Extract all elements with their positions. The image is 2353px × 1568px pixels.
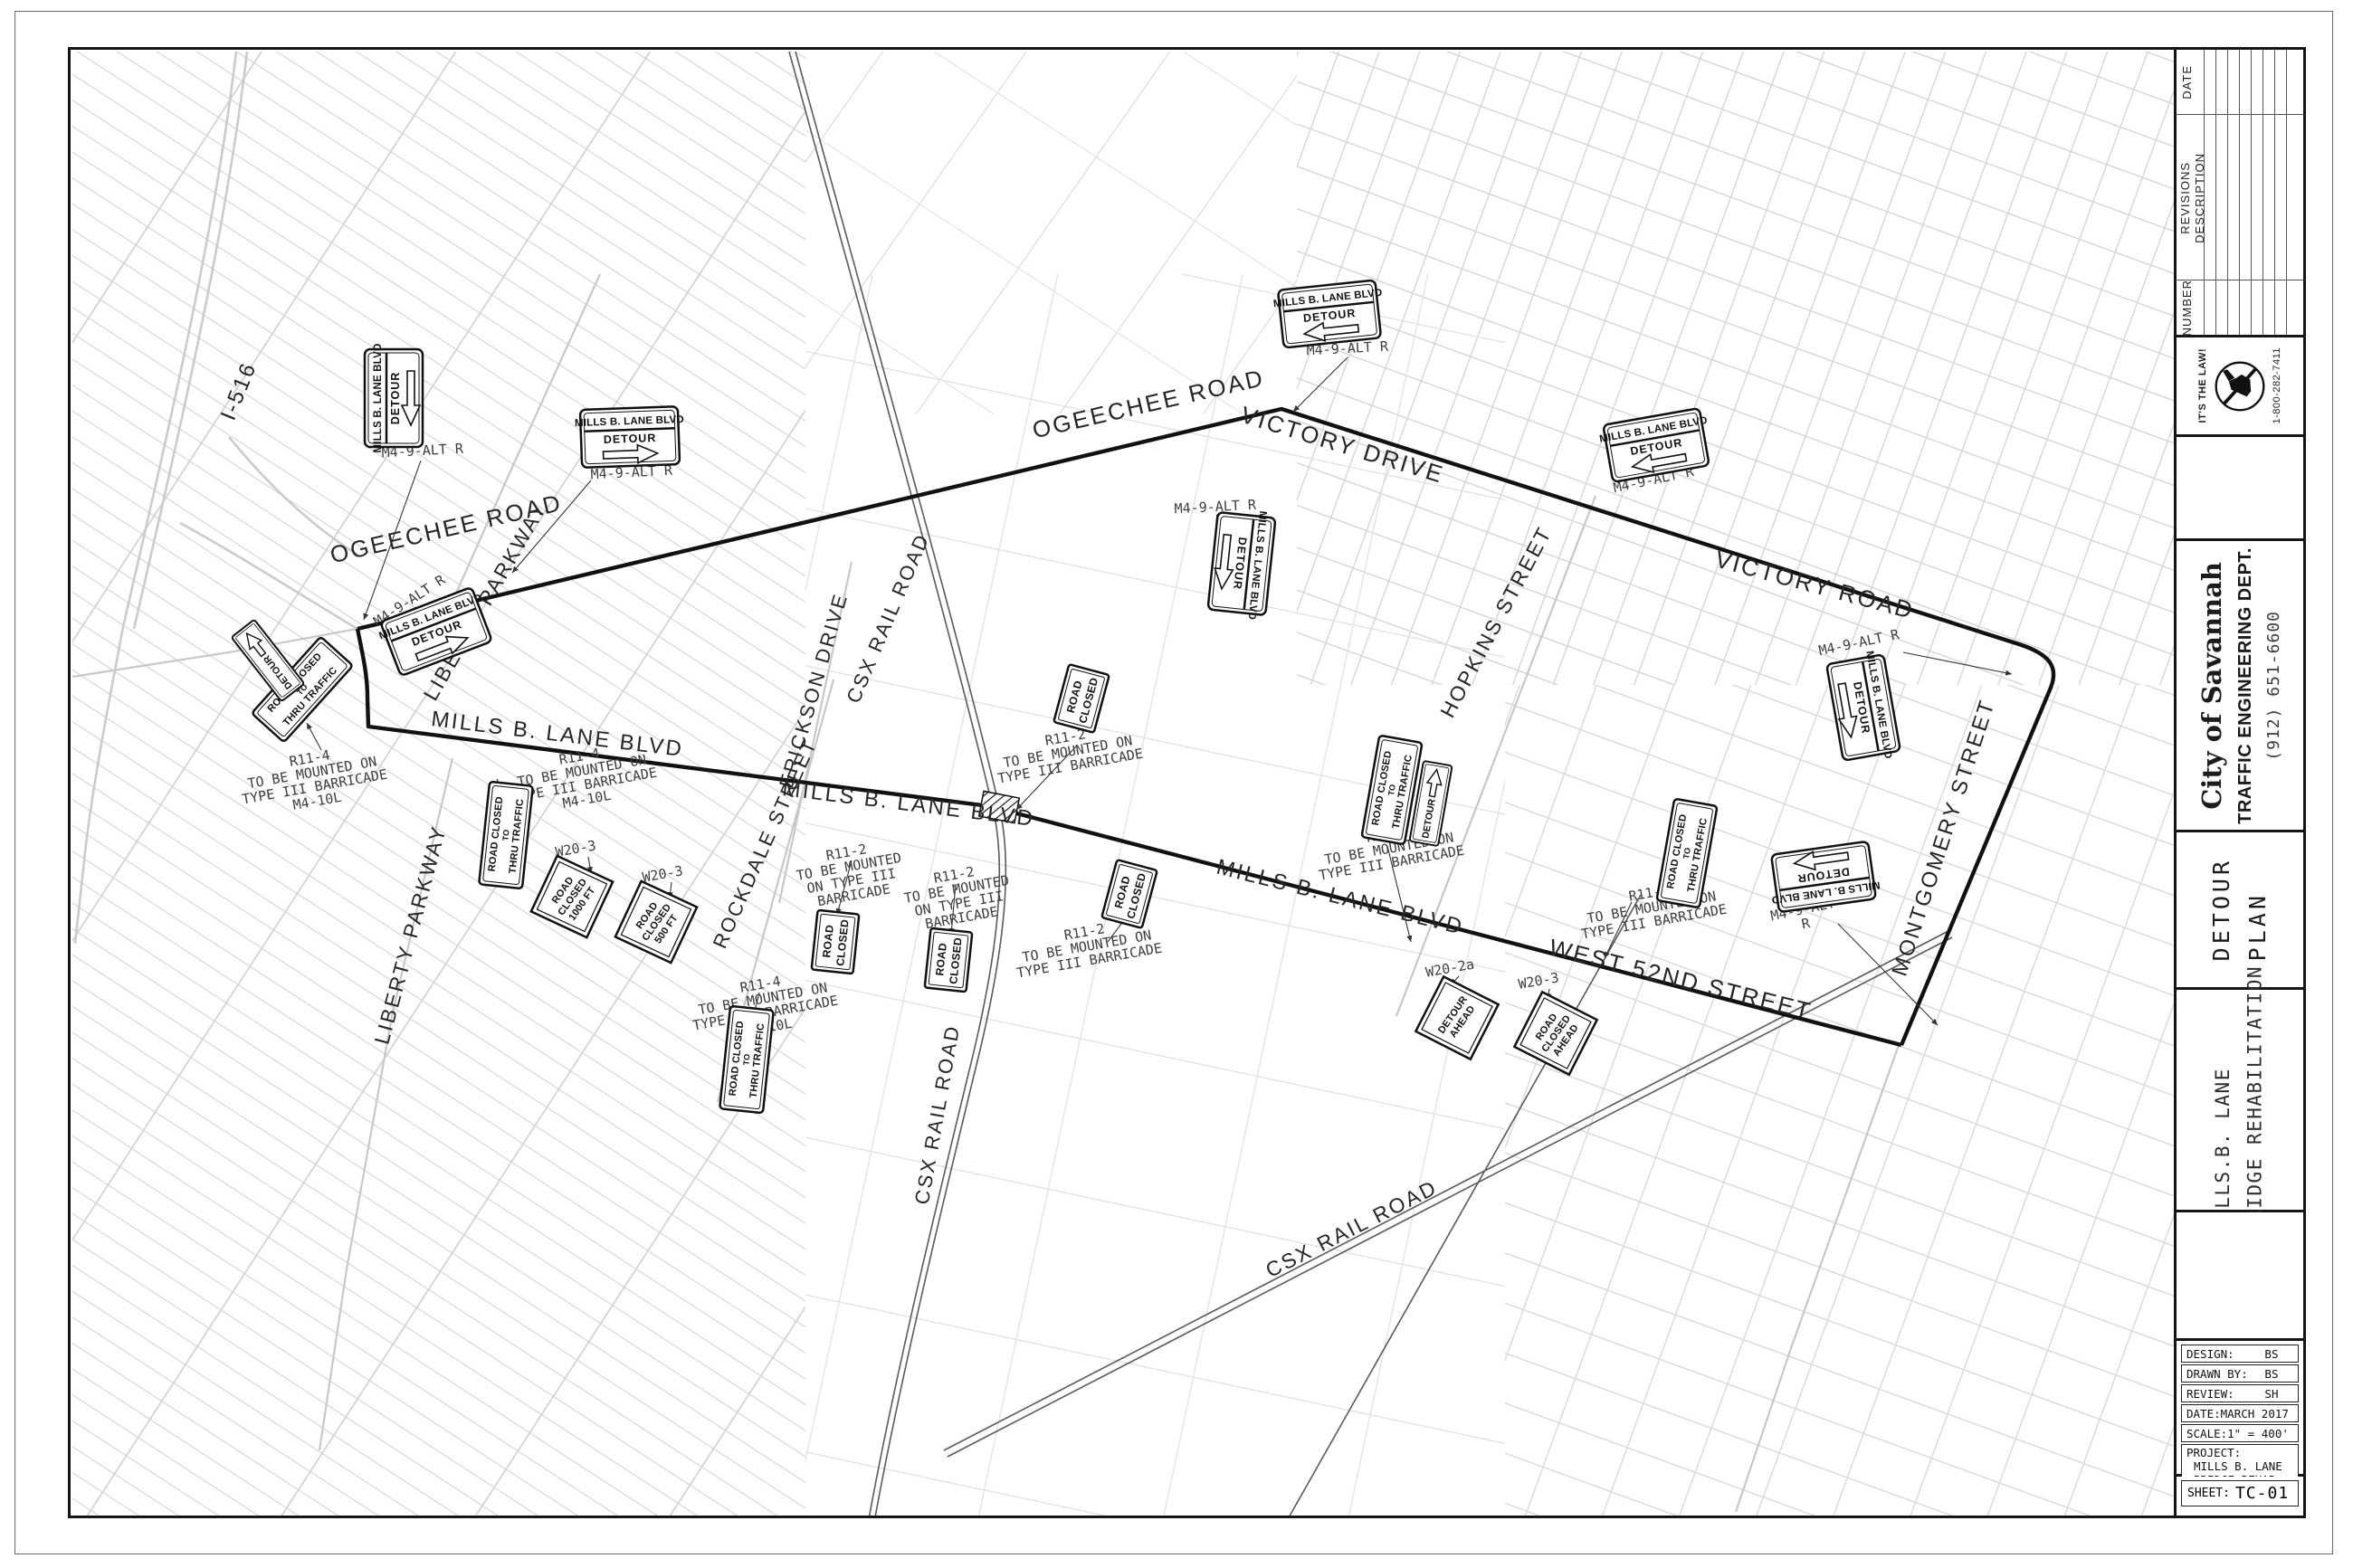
agency-dept: TRAFFIC ENGINEERING DEPT. [2235, 547, 2256, 824]
spec-note: R11-2TO BE MOUNTED ONTYPE III BARRICADE [992, 717, 1145, 786]
revisions-table: DATE REVISIONS DESCRIPTION NUMBER [2177, 50, 2303, 337]
sheet-number-box: SHEET: TC-01 [2181, 1480, 2299, 1506]
svg-text:TO: TO [500, 829, 510, 841]
road-label: HOPKINS STREET [1435, 522, 1557, 721]
background-streets [71, 50, 2179, 1516]
agency-panel: City of Savannah TRAFFIC ENGINEERING DEP… [2177, 541, 2303, 832]
road-label: CSX RAIL ROAD [842, 529, 934, 706]
sheet-number-panel: SHEET: TC-01 [2177, 1477, 2303, 1516]
svg-text:TO: TO [741, 1053, 751, 1066]
info-row: DESIGN:BS [2181, 1345, 2299, 1363]
info-row: DATE:MARCH 2017 [2181, 1404, 2299, 1422]
sheet-number: TC-01 [2235, 1484, 2289, 1503]
revisions-number-header: NUMBER [2180, 280, 2194, 336]
detour-plan-map: I-516OGEECHEE ROADOGEECHEE ROADVICTORY D… [71, 50, 2179, 1516]
road-label: ROCKDALE STREET [709, 735, 822, 952]
svg-text:DETOUR: DETOUR [389, 372, 402, 425]
m4-9-detour-sign: MILLS B. LANE BLVDDETOUR [574, 406, 685, 468]
no-dig-icon [2212, 356, 2268, 416]
road-closed-sign: ROADCLOSED [925, 928, 973, 992]
road-label: MONTGOMERY STREET [1888, 696, 2001, 979]
info-row: DRAWN BY:BS [2181, 1364, 2299, 1383]
project-title: MILLS.B. LANE BRIDGE REHABILITATION [2207, 965, 2272, 1234]
agency-name: City of Savannah [2196, 562, 2227, 810]
m4-9-detour-sign: MILLS B. LANE BLVDDETOUR [1597, 407, 1715, 483]
m4-9-detour-sign: MILLS B. LANE BLVDDETOUR [1272, 280, 1387, 348]
m4-9-detour-sign: MILLS B. LANE BLVDDETOUR [1825, 649, 1901, 766]
road-label: WEST 52ND STREET [1547, 934, 1815, 1025]
its-the-law-text: IT'S THE LAW! [2197, 348, 2208, 423]
road-closed-sign: ROADCLOSED [1101, 860, 1157, 928]
road-label: OGEECHEE ROAD [1030, 364, 1267, 443]
m4-9-detour-sign: MILLS B. LANE BLVDDETOUR [1766, 841, 1882, 913]
spec-note: W20-2a [1424, 956, 1475, 981]
svg-text:DETOUR: DETOUR [604, 432, 657, 446]
info-row: REVIEW:SH [2181, 1384, 2299, 1402]
call-before-dig-panel: IT'S THE LAW! 1-800-282-7411 [2177, 337, 2303, 437]
spec-note: R11-2TO BE MOUNTEDON TYPE IIIBARRICADE [900, 858, 1015, 935]
road-closed-thru-traffic-sign: ROAD CLOSEDTOTHRU TRAFFIC [719, 1006, 774, 1113]
m4-9-detour-sign: MILLS B. LANE BLVDDETOUR [1207, 507, 1276, 622]
spec-note: W20-3 [1517, 969, 1560, 993]
drawing-frame: I-516OGEECHEE ROADOGEECHEE ROADVICTORY D… [68, 47, 2306, 1518]
revisions-date-header: DATE [2180, 65, 2194, 100]
spec-note: R11-2TO BE MOUNTEDON TYPE IIIBARRICADE [793, 835, 908, 912]
revisions-grid-lines [2204, 50, 2291, 335]
dig-hotline-phone: 1-800-282-7411 [2272, 347, 2282, 423]
blank-panel [2177, 1212, 2303, 1341]
road-closed-sign: ROADCLOSED [1053, 664, 1110, 733]
sheet-label: SHEET: [2187, 1487, 2230, 1500]
title-block: DATE REVISIONS DESCRIPTION NUMBER IT'S T… [2174, 50, 2303, 1516]
road-label: VICTORY ROAD [1712, 546, 1918, 625]
road-label: VICTORY DRIVE [1238, 401, 1448, 489]
plan-sheet: I-516OGEECHEE ROADOGEECHEE ROADVICTORY D… [0, 0, 2353, 1568]
drawing-info-table: DESIGN:BSDRAWN BY:BSREVIEW:SHDATE:MARCH … [2177, 1341, 2303, 1477]
revisions-title: REVISIONS [2178, 162, 2192, 234]
road-label: CSX RAIL ROAD [910, 1022, 965, 1206]
agency-phone: (912) 651-6600 [2264, 611, 2283, 761]
project-title-panel: MILLS.B. LANE BRIDGE REHABILITATION [2177, 990, 2303, 1212]
road-closed-sign: ROADCLOSED [812, 910, 860, 974]
svg-text:MILLS B. LANE BLVD: MILLS B. LANE BLVD [373, 344, 384, 453]
road-label: LIBERTY PARKWAY [369, 822, 451, 1047]
road-label: I-516 [216, 358, 262, 423]
m4-9-detour-sign: MILLS B. LANE BLVDDETOUR [365, 344, 423, 453]
empty-panel [2177, 437, 2303, 541]
drawing-title: DETOUR PLAN [2204, 858, 2276, 961]
highway-i516-paths [75, 52, 357, 944]
warning-diamond-sign: DETOURAHEAD [1403, 964, 1512, 1073]
road-label: CSX RAIL ROAD [1262, 1175, 1441, 1282]
spec-note: R11-4TO BE MOUNTED ONTYPE III BARRICADE [1576, 872, 1729, 942]
road-label: MILLS B. LANE BLVD [781, 776, 1036, 832]
info-row: SCALE:1" = 400' [2181, 1424, 2299, 1442]
road-closed-thru-traffic-sign: ROAD CLOSEDTOTHRU TRAFFIC [479, 782, 533, 889]
